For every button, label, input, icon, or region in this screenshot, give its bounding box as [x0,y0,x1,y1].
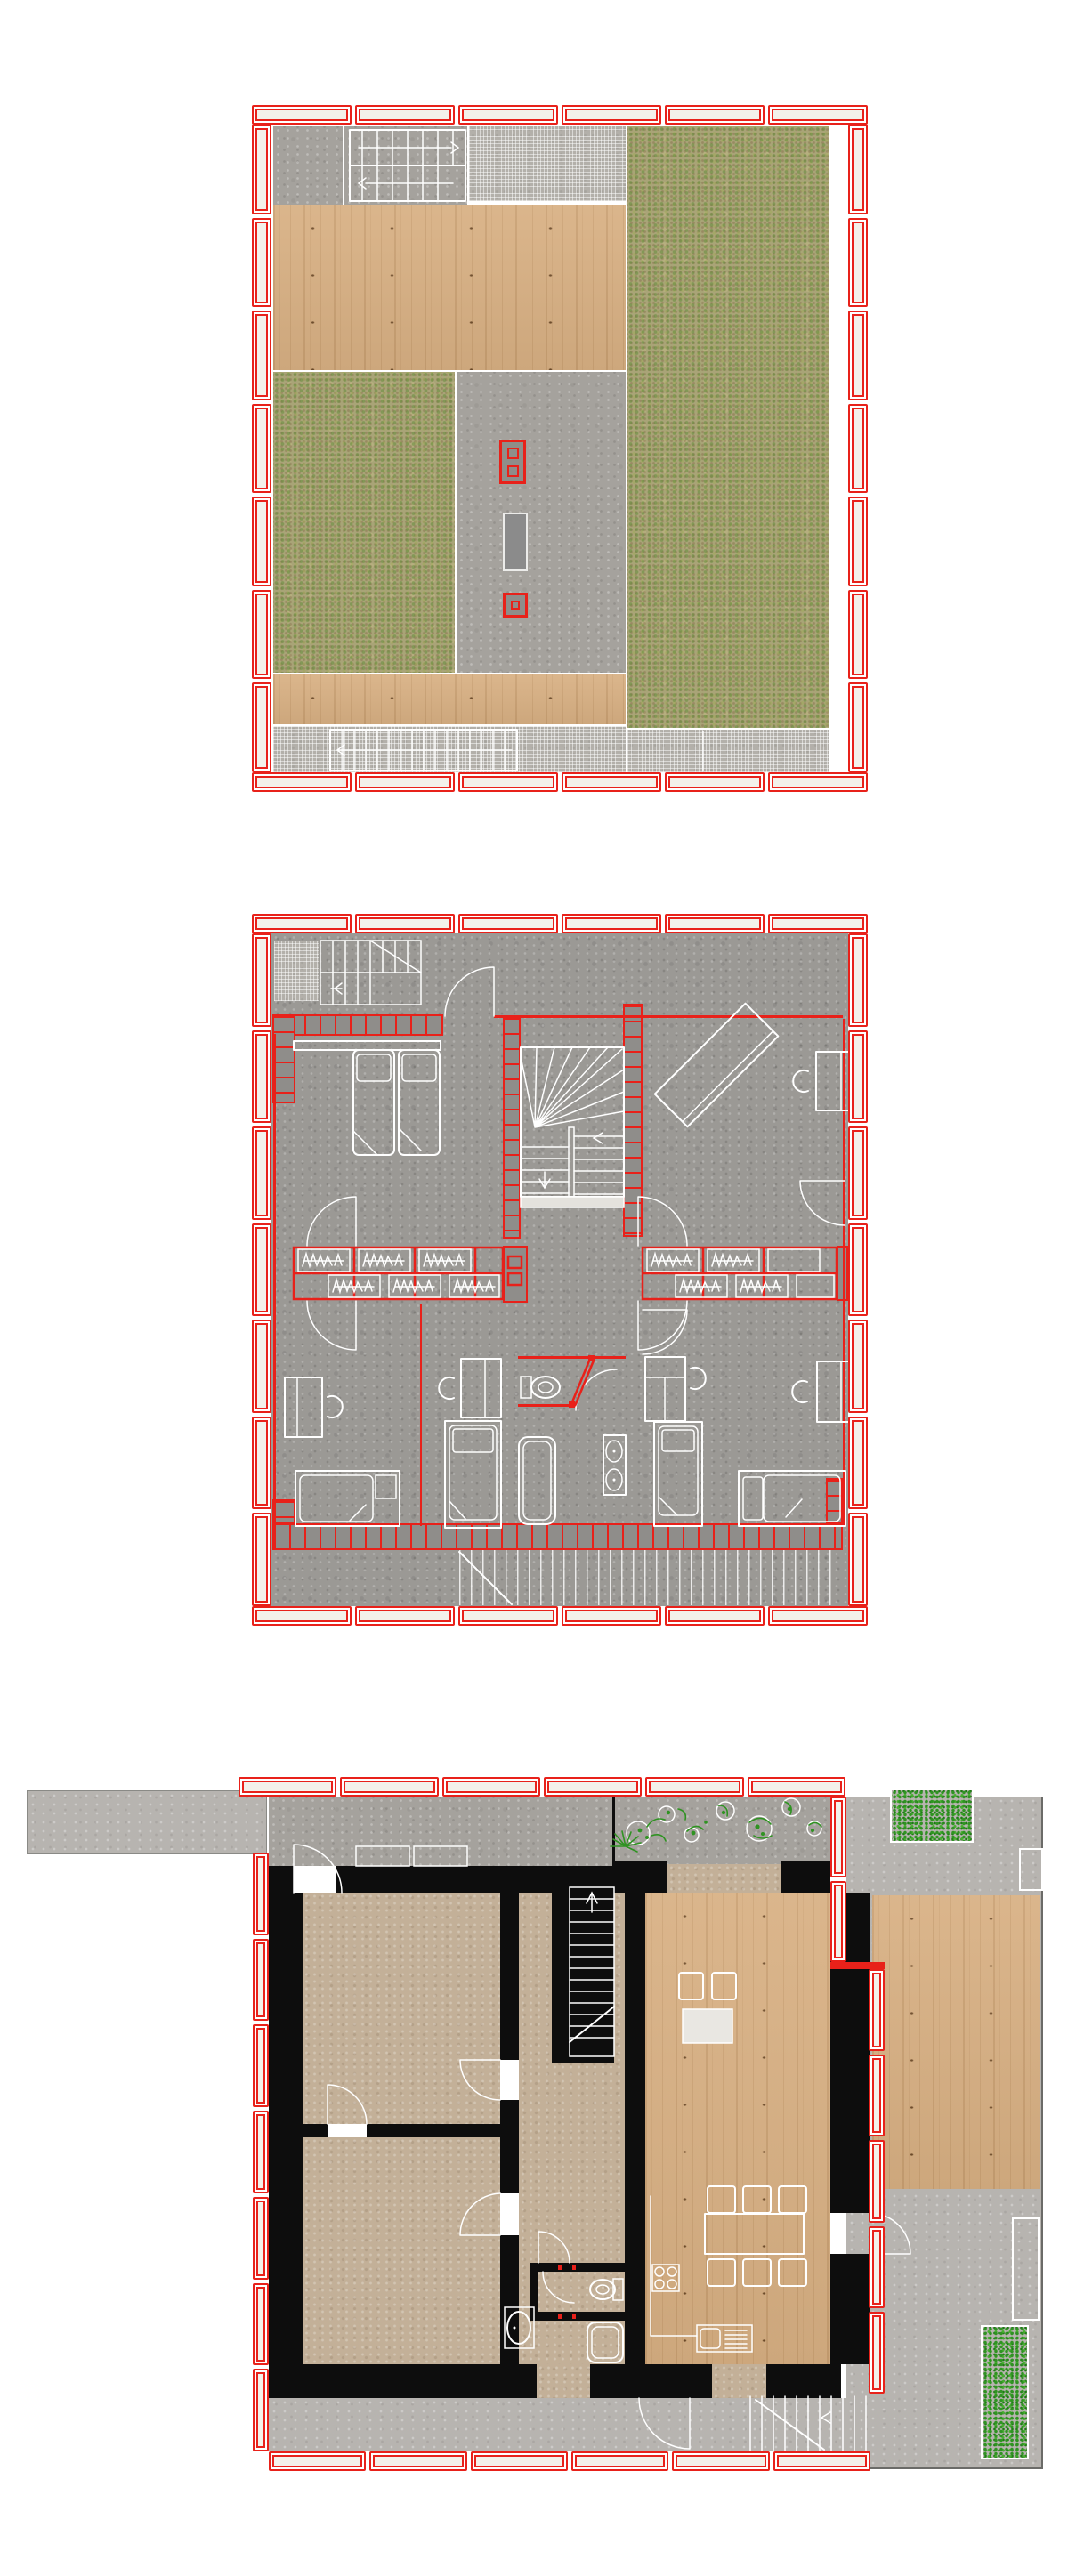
formwork-panel [253,2197,269,2280]
toilet [521,1377,560,1398]
chair-se-2 [691,1368,706,1389]
formwork-panel [253,2283,269,2366]
kitchen-counter [651,2196,752,2352]
formwork-panel [869,1969,885,2051]
formwork-panel [768,1606,868,1626]
formwork-border-right [848,933,868,1606]
bench-pair [356,1846,467,1866]
wardrobe-se [645,1357,685,1421]
entry-door [294,1845,342,1893]
door-arcs-interior [328,2060,574,2303]
ground-floor-plan [24,1747,1044,2472]
formwork-panel [458,105,558,125]
formwork-border-bottom [252,1606,868,1626]
formwork-border-jog [830,1962,885,1969]
formwork-panel [253,1939,269,2022]
formwork-panel [239,1777,336,1797]
formwork-border-right-upper [830,1797,846,1962]
formwork-panel [848,1030,868,1124]
formwork-panel [252,125,271,214]
formwork-panel [355,914,455,933]
formwork-panel [252,933,271,1027]
formwork-panel [252,914,352,933]
stair-south-cut-line [459,1552,512,1604]
formwork-panel [665,772,765,792]
formwork-panel [458,772,558,792]
formwork-panel [252,105,352,125]
formwork-panel [458,914,558,933]
formwork-panel [848,1126,868,1220]
formwork-panel [252,1030,271,1124]
formwork-panel [773,2451,870,2471]
formwork-panel [830,1881,846,1962]
formwork-panel [369,2451,466,2471]
formwork-panel [355,1606,455,1626]
formwork-panel [869,2055,885,2136]
chair-sw2 [439,1377,454,1399]
formwork-panel [252,1126,271,1220]
formwork-panel [848,1513,868,1606]
formwork-panel [471,2451,568,2471]
formwork-panel [848,1320,868,1413]
formwork-border-bottom [252,772,868,792]
roof-linework [252,105,868,792]
formwork-panel [252,311,271,400]
formwork-panel [848,404,868,494]
formwork-panel [562,1606,661,1626]
chair-ne [793,1070,808,1092]
formwork-panel [665,1606,765,1626]
formwork-panel [869,2140,885,2222]
formwork-border-right [848,125,868,772]
formwork-panel [253,2111,269,2193]
single-bed-sw [295,1471,400,1526]
upper-floor-plan [252,914,868,1626]
formwork-panel [665,914,765,933]
single-bed-sw2 [445,1421,501,1528]
stair-north-exterior-icon [320,941,421,1005]
formwork-panel [645,1777,743,1797]
double-washbasin [603,1435,626,1495]
formwork-panel [442,1777,540,1797]
formwork-panel [562,772,661,792]
formwork-panel [848,933,868,1027]
wardrobe-wall-west [294,1248,503,1299]
formwork-panel [848,1417,868,1510]
formwork-panel [544,1777,642,1797]
formwork-border-top [252,105,868,125]
single-bed-se [739,1471,845,1526]
straight-stair-icon [570,1887,614,2056]
dining-table-six-chairs [705,2186,806,2286]
seating-table-two-chairs [679,1973,736,2043]
formwork-panel [848,311,868,400]
formwork-panel [672,2451,769,2471]
formwork-panel [252,218,271,308]
potted-plants [611,1798,821,1852]
formwork-panel [848,497,868,586]
duct-flues [508,1256,522,1285]
formwork-panel [253,2369,269,2451]
formwork-panel [665,105,765,125]
upper-floor-linework [252,914,868,1626]
formwork-panel [252,1320,271,1413]
formwork-panel [253,2024,269,2107]
formwork-panel [252,1417,271,1510]
formwork-panel [768,772,868,792]
formwork-panel [848,125,868,214]
stair-south-icon [330,730,517,771]
chair-se [792,1381,807,1402]
formwork-panel [252,590,271,680]
formwork-panel [458,1606,558,1626]
formwork-panel [848,218,868,308]
formwork-panel [252,772,352,792]
formwork-panel [340,1777,438,1797]
formwork-panel [562,105,661,125]
desk-sw1 [285,1377,322,1437]
ground-floor-linework [24,1747,1044,2472]
formwork-panel [252,497,271,586]
stair-southeast-icon [750,2396,866,2451]
formwork-panel [748,1777,845,1797]
formwork-border-left [253,1853,269,2451]
wardrobe-wall-east [643,1248,837,1299]
formwork-panel [252,404,271,494]
daybed-diagonal [655,1004,779,1127]
formwork-border-left [252,125,271,772]
bathtub [519,1437,555,1524]
formwork-border-right-lower [869,1969,885,2394]
formwork-panel [869,2226,885,2308]
chair-sw1 [328,1396,343,1417]
formwork-panel [252,1513,271,1606]
u-stair-icon [521,1047,624,1207]
formwork-panel [848,682,868,772]
formwork-panel [252,1606,352,1626]
formwork-panel [355,772,455,792]
formwork-panel [768,914,868,933]
formwork-panel [571,2451,668,2471]
drawing-sheet [0,0,1068,2576]
formwork-panel [562,914,661,933]
door-arcs [307,967,845,1410]
roof-plan [252,105,868,792]
formwork-panel [355,105,455,125]
desk-sw2 [461,1359,501,1417]
formwork-panel [848,590,868,680]
bathtub [587,2322,623,2362]
formwork-panel [869,2312,885,2394]
toilet [590,2279,623,2300]
formwork-panel [269,2451,366,2471]
formwork-panel [848,1223,868,1317]
terrace-door [639,2398,690,2449]
formwork-panel [252,1223,271,1317]
formwork-border-left [252,933,271,1606]
stair-north-icon [350,130,465,201]
formwork-border-top [239,1777,845,1797]
formwork-panel [768,105,868,125]
formwork-border-bottom [269,2451,870,2471]
single-bed-s1 [654,1422,702,1526]
formwork-panel [253,1853,269,1935]
sliding-door-red [569,1355,595,1408]
washbasin [505,2307,534,2348]
formwork-panel [830,1797,846,1877]
double-bed [294,1041,441,1155]
formwork-border-top [252,914,868,933]
formwork-panel [252,682,271,772]
